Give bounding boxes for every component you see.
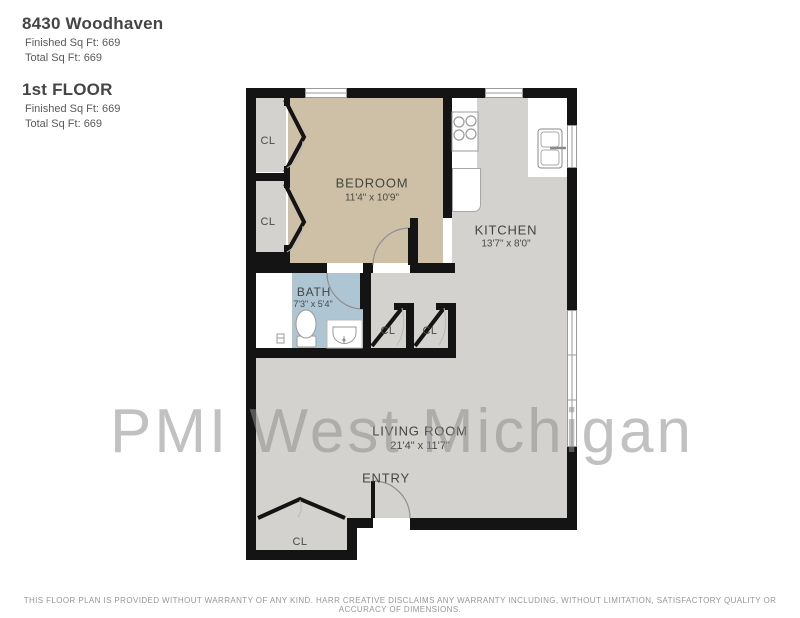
- bedroom-dims: 11'4" x 10'9": [345, 193, 399, 204]
- kitchen-dims: 13'7" x 8'0": [481, 239, 530, 250]
- property-address: 8430 Woodhaven: [22, 14, 163, 34]
- wall-hallcloset-divider: [406, 303, 414, 348]
- utility-symbol: [277, 334, 284, 343]
- watermark: PMI West Michigan: [82, 396, 722, 467]
- kitchen-counter-right: [528, 98, 567, 177]
- wall-top: [246, 88, 577, 98]
- closet-label-4: CL: [422, 325, 437, 337]
- wall-closet-stub-top: [284, 98, 290, 106]
- disclaimer-text: THIS FLOOR PLAN IS PROVIDED WITHOUT WARR…: [0, 596, 800, 614]
- closet-label-1: CL: [260, 135, 275, 147]
- wall-hallcloset1-stub: [394, 303, 406, 310]
- kitchen-label: KITCHEN: [475, 223, 538, 238]
- closet-label-2: CL: [260, 216, 275, 228]
- closet-label-5: CL: [292, 536, 307, 548]
- property-finished-sqft: Finished Sq Ft: 669: [22, 37, 163, 49]
- floor-name: 1st FLOOR: [22, 80, 120, 100]
- closet-label-3: CL: [380, 325, 395, 337]
- floorplan-page: 8430 Woodhaven Finished Sq Ft: 669 Total…: [0, 0, 800, 618]
- floor-finished-sqft: Finished Sq Ft: 669: [22, 103, 120, 115]
- wall-entry-closet-right: [347, 518, 357, 560]
- wall-closet-stub-bottom: [284, 245, 290, 263]
- wall-bath-door-stub: [363, 263, 373, 273]
- wall-bath-right: [363, 273, 371, 348]
- property-total-sqft: Total Sq Ft: 669: [22, 52, 163, 64]
- wall-closet-stub-mid: [284, 166, 290, 188]
- wall-hallcloset2-right: [448, 303, 456, 348]
- wall-bedroom-bottom-left: [246, 263, 327, 273]
- wall-hall-bottom: [246, 348, 456, 358]
- wall-bottom-right: [410, 518, 577, 530]
- wall-left: [246, 88, 256, 560]
- wall-bedroom-kitchen: [443, 88, 452, 218]
- property-header: 8430 Woodhaven Finished Sq Ft: 669 Total…: [22, 14, 163, 64]
- window-kitchen-right: [567, 125, 577, 168]
- wall-entry-closet-bottom: [246, 550, 357, 560]
- window-kitchen-top: [485, 88, 523, 98]
- bath-label: BATH: [297, 285, 331, 299]
- refrigerator: [452, 168, 481, 212]
- bath-dims: 7'3" x 5'4": [293, 299, 332, 309]
- entry-label: ENTRY: [362, 471, 410, 486]
- window-bedroom-top: [305, 88, 347, 98]
- floor-total-sqft: Total Sq Ft: 669: [22, 118, 120, 130]
- wall-hallcloset2-stub: [436, 303, 448, 310]
- floor-header: 1st FLOOR Finished Sq Ft: 669 Total Sq F…: [22, 80, 120, 130]
- bedroom-label: BEDROOM: [336, 176, 409, 191]
- wall-bedroom-door-jamb: [410, 218, 418, 265]
